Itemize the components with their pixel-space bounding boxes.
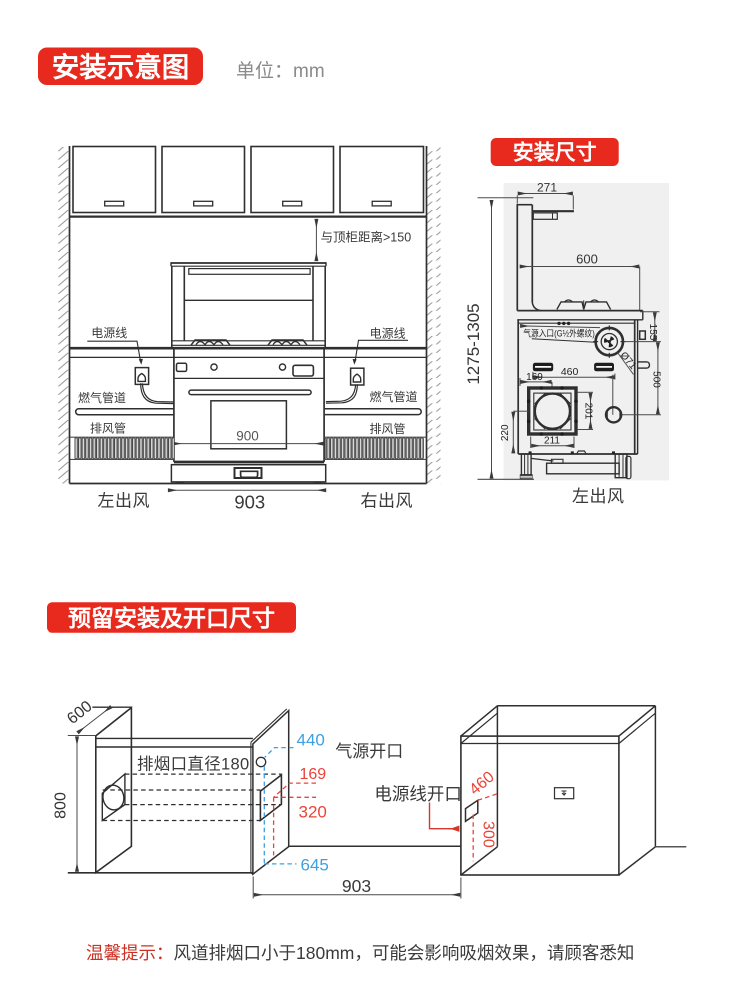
svg-text:温馨提示：风道排烟口小于180mm，可能会影响吸烟效果，请顾: 温馨提示：风道排烟口小于180mm，可能会影响吸烟效果，请顾客悉知 xyxy=(86,943,634,963)
svg-text:与顶柜距离>150: 与顶柜距离>150 xyxy=(321,230,412,245)
svg-text:155: 155 xyxy=(647,324,658,341)
svg-text:903: 903 xyxy=(234,492,265,513)
svg-text:排烟口直径180: 排烟口直径180 xyxy=(137,755,249,774)
svg-text:220: 220 xyxy=(500,424,511,441)
svg-text:900: 900 xyxy=(236,429,259,444)
svg-text:燃气管道: 燃气管道 xyxy=(78,390,126,405)
svg-text:气源开口: 气源开口 xyxy=(335,742,403,761)
svg-text:211: 211 xyxy=(544,436,560,447)
svg-text:右出风: 右出风 xyxy=(361,492,414,511)
svg-text:320: 320 xyxy=(299,803,327,822)
svg-text:169: 169 xyxy=(300,766,327,783)
svg-text:645: 645 xyxy=(301,856,329,875)
svg-text:单位：mm: 单位：mm xyxy=(236,60,325,82)
svg-text:燃气管道: 燃气管道 xyxy=(370,389,418,404)
svg-text:电源线: 电源线 xyxy=(370,327,406,341)
svg-text:1275-1305: 1275-1305 xyxy=(464,303,483,384)
svg-text:800: 800 xyxy=(52,792,69,819)
svg-text:300: 300 xyxy=(479,821,496,848)
svg-text:500: 500 xyxy=(651,371,662,388)
svg-text:169: 169 xyxy=(526,372,543,383)
svg-text:安装尺寸: 安装尺寸 xyxy=(513,141,597,165)
svg-text:903: 903 xyxy=(342,876,371,896)
svg-text:安装示意图: 安装示意图 xyxy=(52,52,190,83)
svg-text:电源线开口: 电源线开口 xyxy=(374,784,462,804)
svg-text:201: 201 xyxy=(582,403,593,420)
svg-text:电源线: 电源线 xyxy=(91,326,127,340)
svg-text:排风管: 排风管 xyxy=(90,421,126,436)
svg-text:气源入口(G½外螺纹): 气源入口(G½外螺纹) xyxy=(523,328,595,339)
svg-text:预留安装及开口尺寸: 预留安装及开口尺寸 xyxy=(68,605,275,631)
svg-text:440: 440 xyxy=(297,731,325,750)
svg-text:460: 460 xyxy=(561,366,579,378)
svg-text:左出风: 左出风 xyxy=(572,487,625,506)
svg-text:600: 600 xyxy=(576,252,598,267)
svg-text:左出风: 左出风 xyxy=(98,492,151,511)
svg-text:排风管: 排风管 xyxy=(370,421,406,436)
svg-text:271: 271 xyxy=(537,181,557,195)
